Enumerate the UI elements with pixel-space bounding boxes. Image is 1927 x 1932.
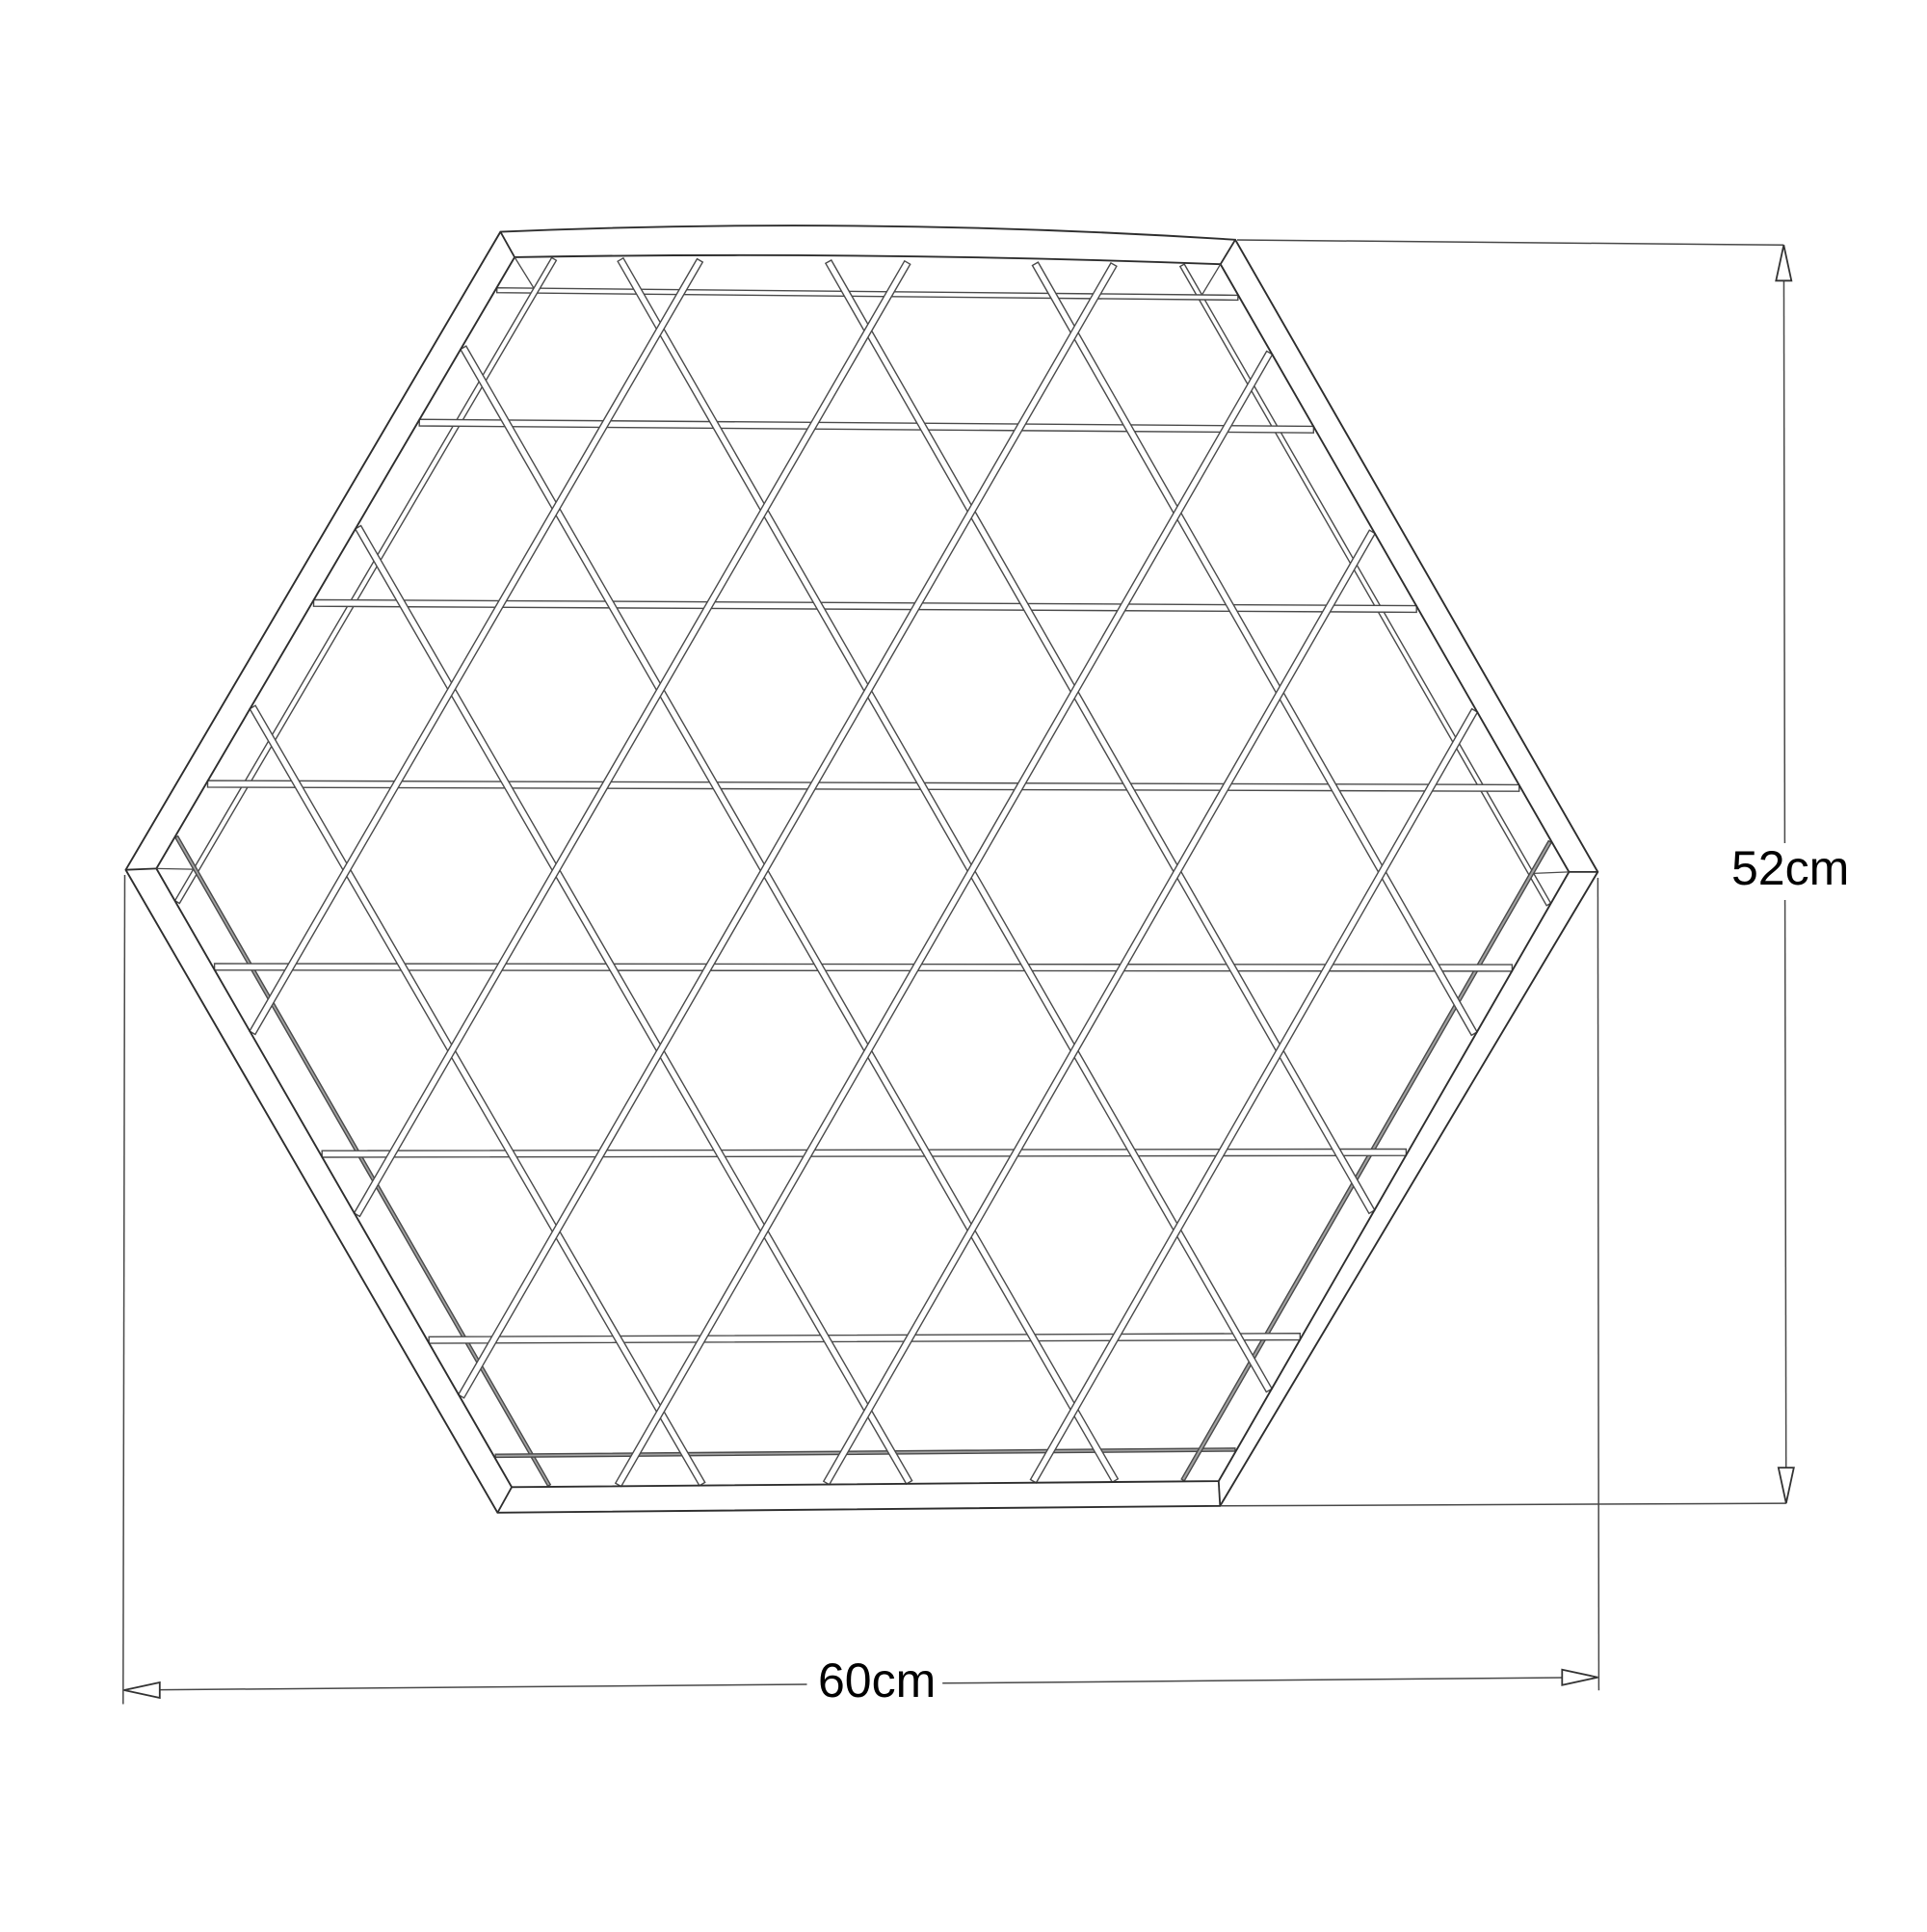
svg-text:52cm: 52cm — [1731, 841, 1849, 895]
svg-text:60cm: 60cm — [818, 1654, 936, 1707]
